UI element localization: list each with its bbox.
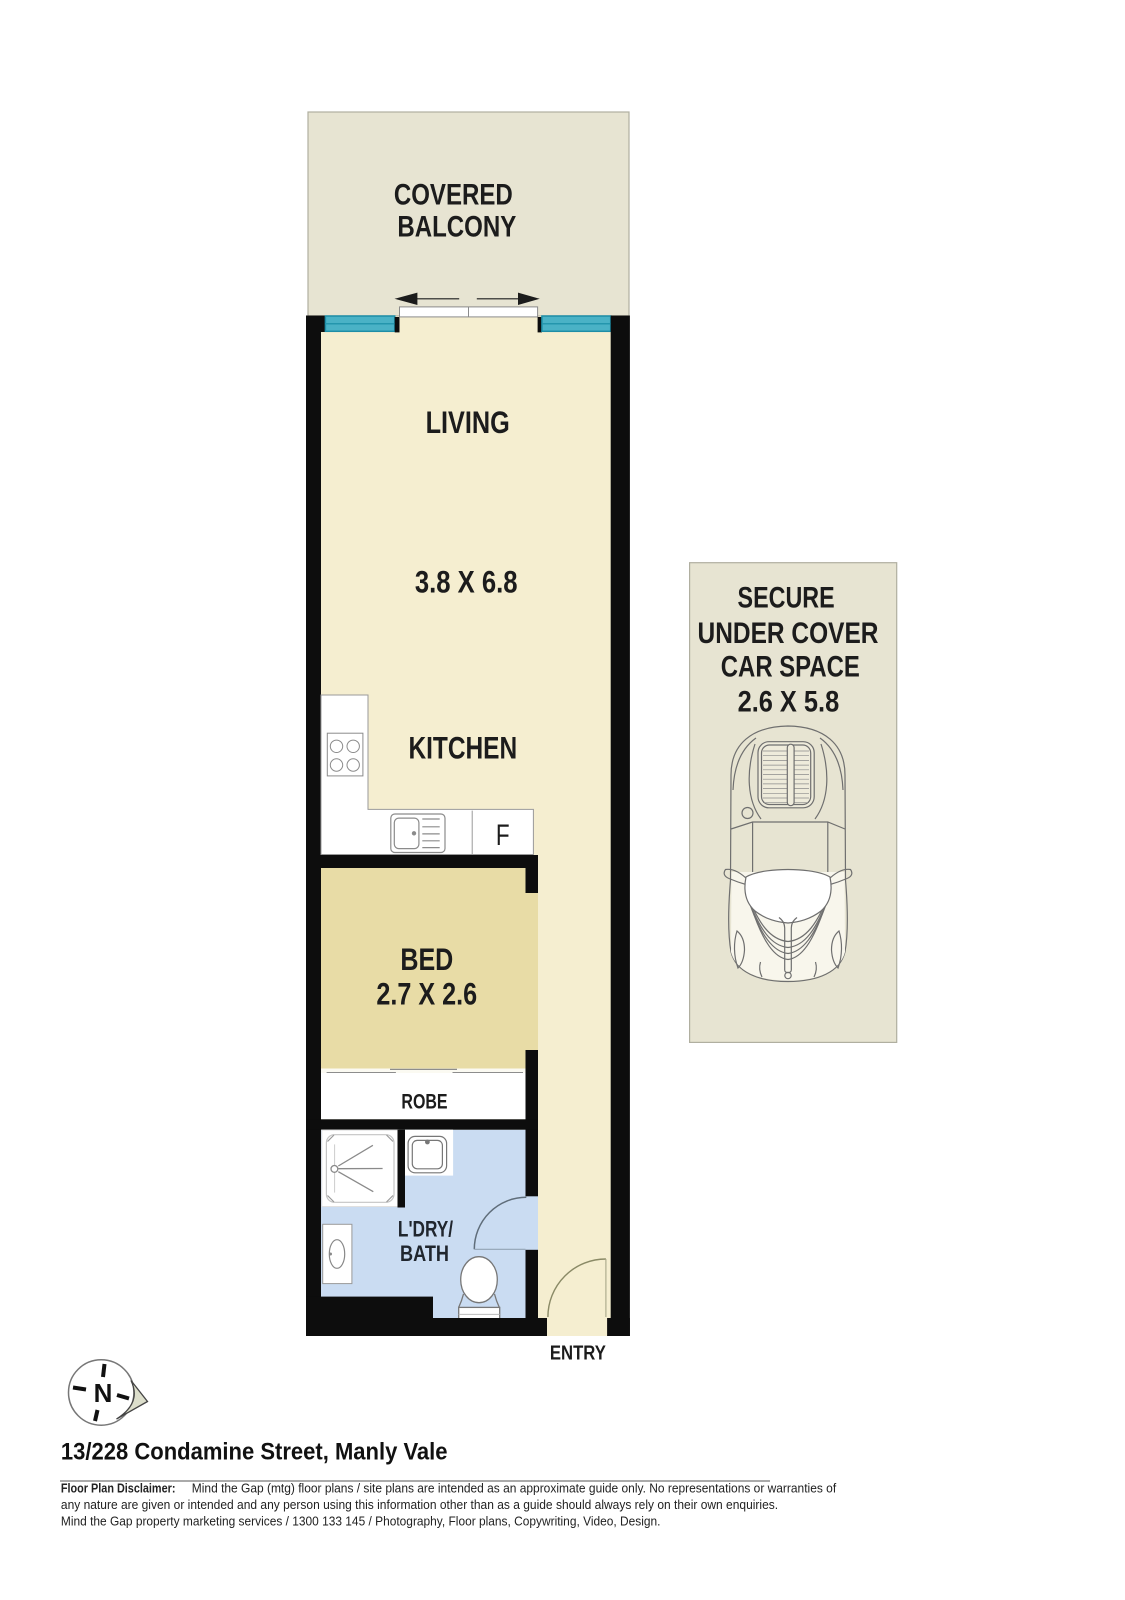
svg-text:any nature are given or intend: any nature are given or intended and any… bbox=[61, 1498, 778, 1513]
svg-text:2.6 X 5.8: 2.6 X 5.8 bbox=[738, 685, 840, 718]
svg-text:3.8 X 6.8: 3.8 X 6.8 bbox=[415, 565, 518, 600]
svg-text:L'DRY/: L'DRY/ bbox=[398, 1217, 454, 1242]
svg-text:Mind the Gap (mtg) floor plans: Mind the Gap (mtg) floor plans / site pl… bbox=[192, 1481, 837, 1496]
svg-text:LIVING: LIVING bbox=[426, 406, 510, 441]
svg-text:13/228 Condamine Street, Manly: 13/228 Condamine Street, Manly Vale bbox=[61, 1438, 448, 1465]
svg-text:Mind the Gap property marketin: Mind the Gap property marketing services… bbox=[61, 1514, 661, 1529]
svg-text:N: N bbox=[94, 1378, 113, 1408]
svg-text:KITCHEN: KITCHEN bbox=[408, 729, 517, 765]
svg-text:Floor Plan Disclaimer:: Floor Plan Disclaimer: bbox=[61, 1481, 176, 1496]
svg-text:ROBE: ROBE bbox=[401, 1089, 447, 1113]
svg-text:BALCONY: BALCONY bbox=[397, 210, 516, 243]
svg-text:SECURE: SECURE bbox=[738, 581, 835, 614]
svg-text:F: F bbox=[496, 818, 510, 852]
svg-text:CAR SPACE: CAR SPACE bbox=[721, 650, 860, 683]
svg-text:ENTRY: ENTRY bbox=[550, 1341, 606, 1364]
svg-text:UNDER COVER: UNDER COVER bbox=[698, 616, 879, 650]
svg-text:BATH: BATH bbox=[400, 1242, 449, 1266]
svg-text:BED: BED bbox=[400, 942, 453, 977]
svg-text:COVERED: COVERED bbox=[394, 178, 513, 211]
svg-text:2.7 X 2.6: 2.7 X 2.6 bbox=[376, 977, 477, 1012]
